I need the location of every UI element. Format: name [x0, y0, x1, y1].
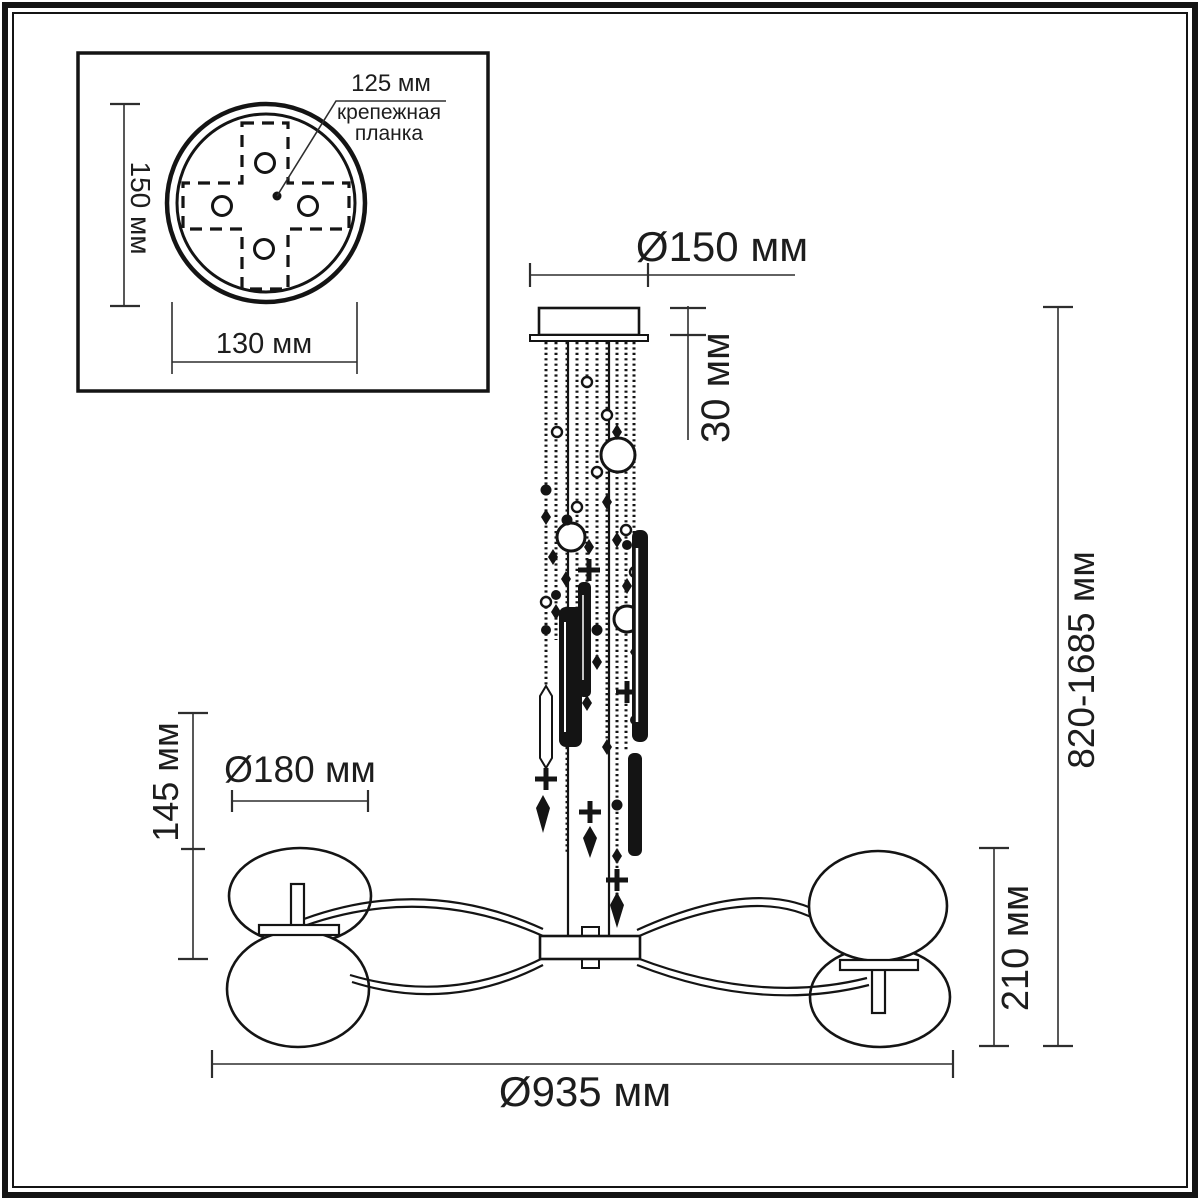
- body-height-label: 210 мм: [997, 873, 1037, 1023]
- left-lower-globe: [227, 931, 369, 1047]
- total-diameter-label: Ø935 мм: [435, 1071, 735, 1114]
- canopy-height-label: 30 мм: [696, 333, 736, 443]
- right-lamp-stem: [872, 969, 885, 1013]
- total-height-label: 820-1685 мм: [1063, 545, 1103, 775]
- crystal-ring: [601, 438, 635, 472]
- crystal-ring: [557, 523, 585, 551]
- central-hub: [540, 927, 640, 968]
- shade-diameter-label: Ø180 мм: [175, 751, 425, 789]
- inset-dim-130-label: 130 мм: [164, 330, 364, 360]
- inset-dim-125-label: 125 мм: [316, 72, 466, 96]
- canopy: [530, 308, 648, 341]
- left-lamp-cap: [259, 925, 339, 935]
- dim-shade-diameter: [232, 790, 368, 812]
- right-lamp-cap: [840, 960, 918, 970]
- left-lamp-stem: [291, 884, 304, 927]
- mounting-bar-label: крепежная планка: [314, 102, 464, 145]
- white-pointed-tube: [540, 686, 552, 768]
- right-upper-arm: [637, 898, 825, 937]
- right-upper-globe: [809, 851, 947, 961]
- canopy-diameter-label: Ø150 мм: [597, 226, 847, 269]
- mounting-bar-label-line1: крепежная: [314, 102, 464, 123]
- dimension-diagram: 125 мм крепежная планка 150 мм 130 мм Ø1…: [0, 0, 1200, 1200]
- inset-dim-150-label: 150 мм: [124, 153, 154, 263]
- left-lower-arm: [350, 958, 543, 994]
- mounting-bar-label-line2: планка: [314, 123, 464, 144]
